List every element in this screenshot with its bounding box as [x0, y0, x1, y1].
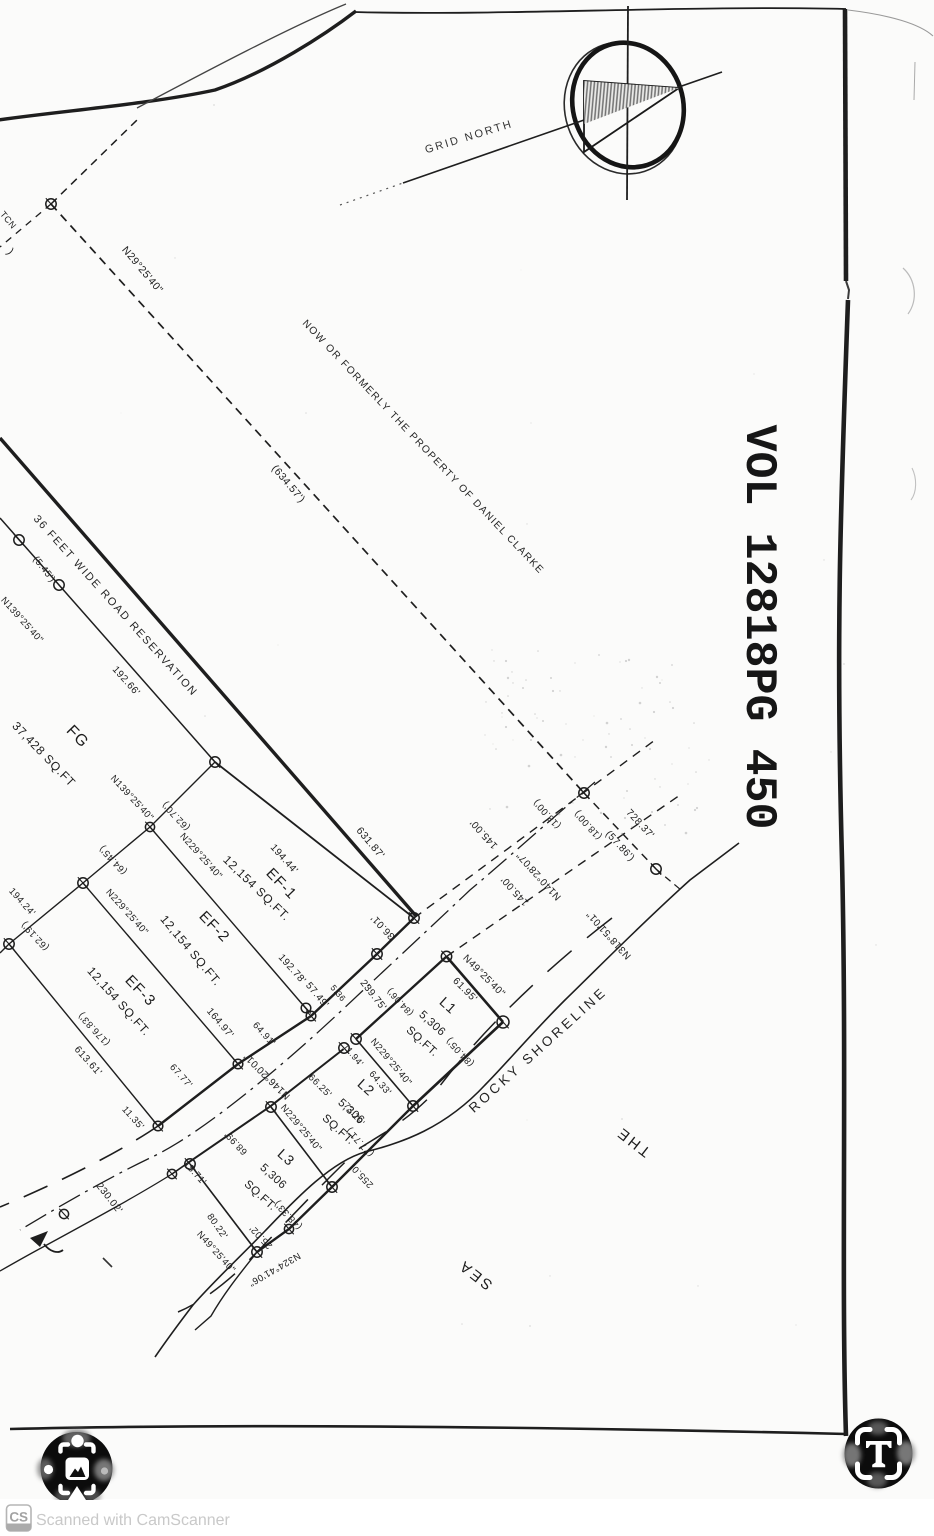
svg-text:Scanned with CamScanner: Scanned with CamScanner: [36, 1512, 231, 1529]
svg-text:VOL 12818PG 450: VOL 12818PG 450: [733, 424, 784, 829]
svg-text:CS: CS: [9, 1510, 28, 1525]
